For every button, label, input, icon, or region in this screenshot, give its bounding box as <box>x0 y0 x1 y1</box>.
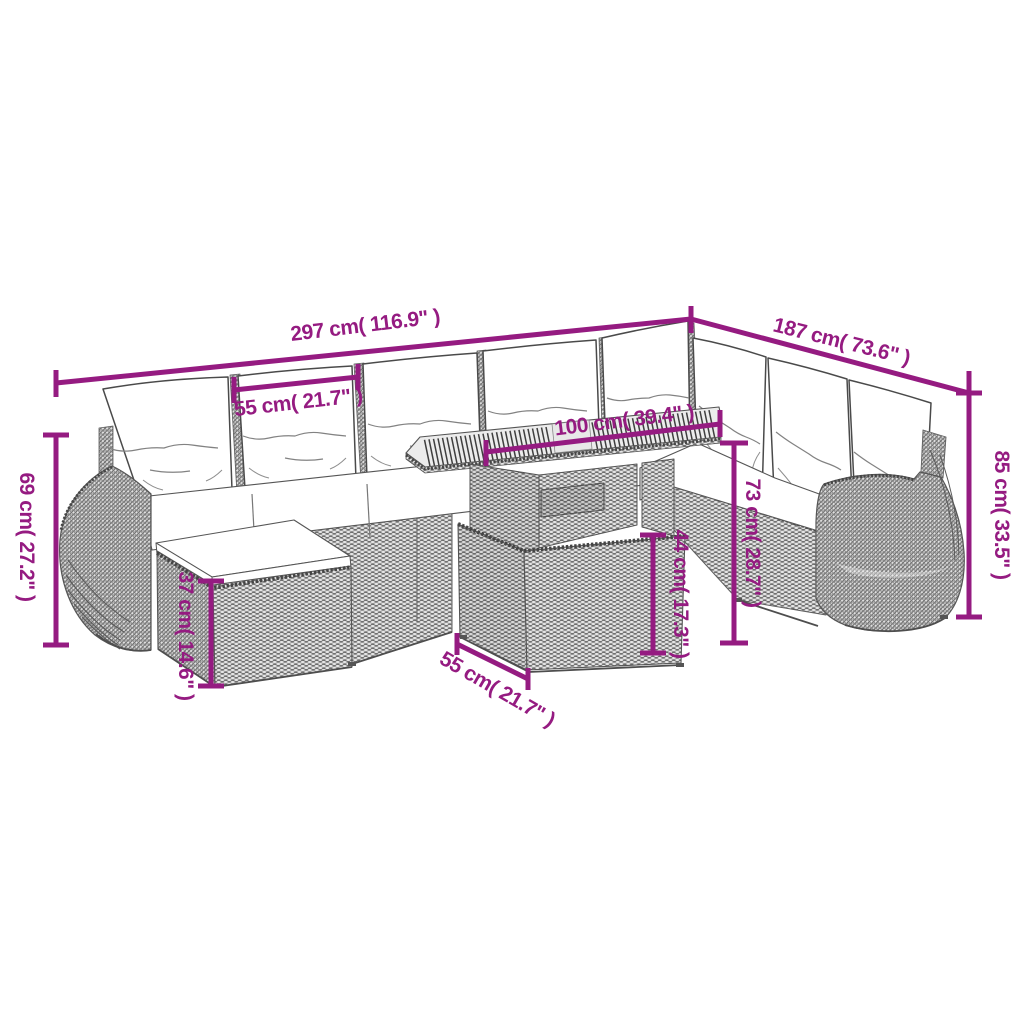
svg-text:69 cm( 27.2" ): 69 cm( 27.2" ) <box>15 472 38 601</box>
svg-text:85 cm( 33.5" ): 85 cm( 33.5" ) <box>990 450 1013 579</box>
svg-text:73 cm( 28.7" ): 73 cm( 28.7" ) <box>741 478 764 607</box>
svg-text:44 cm( 17.3" ): 44 cm( 17.3" ) <box>669 529 692 658</box>
svg-text:37 cm( 14.6" ): 37 cm( 14.6" ) <box>174 571 197 700</box>
